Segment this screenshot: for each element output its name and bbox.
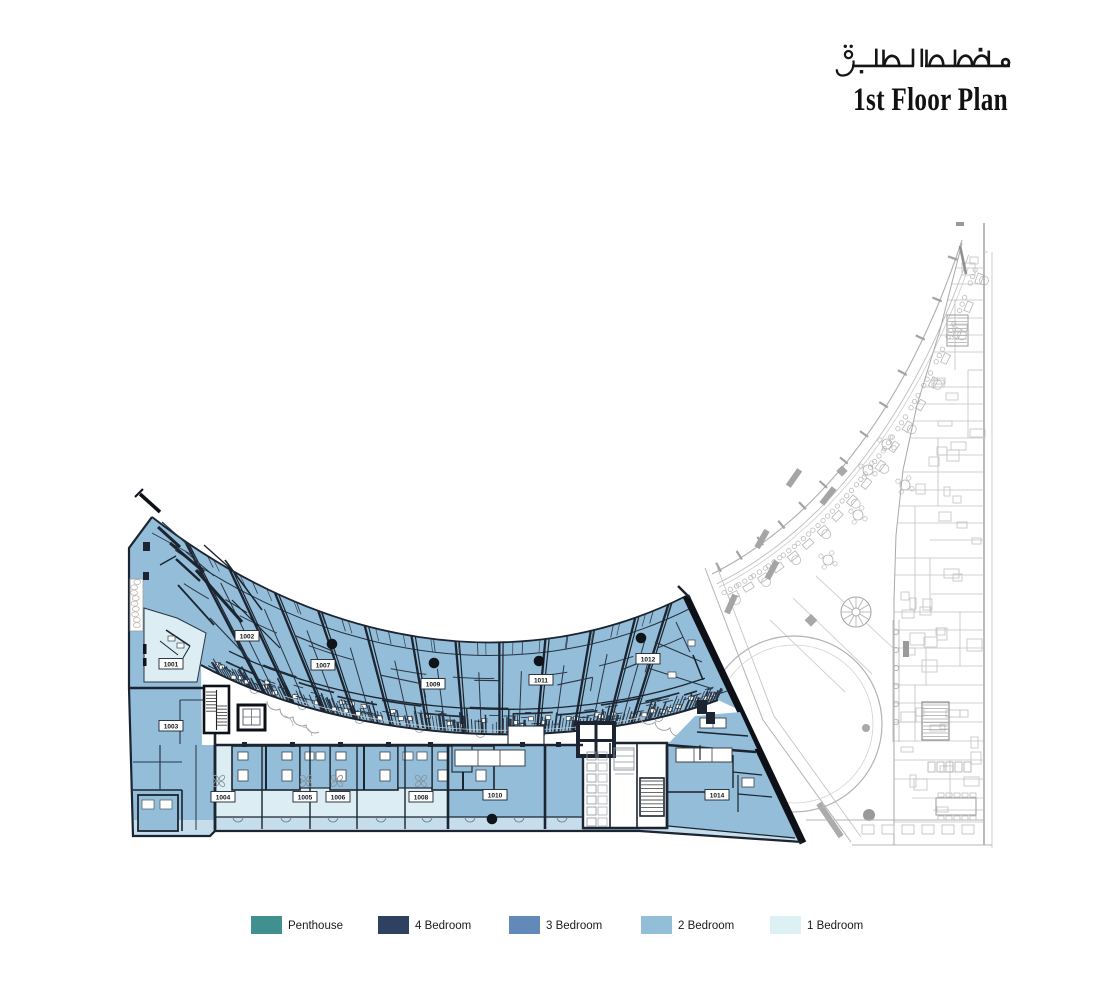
- svg-text:3 Bedroom: 3 Bedroom: [546, 920, 602, 932]
- svg-text:1005: 1005: [298, 795, 313, 802]
- svg-text:1002: 1002: [240, 634, 255, 641]
- svg-text:1008: 1008: [414, 795, 429, 802]
- svg-text:1010: 1010: [488, 793, 503, 800]
- svg-text:1006: 1006: [331, 795, 346, 802]
- svg-text:1014: 1014: [710, 793, 725, 800]
- svg-text:1004: 1004: [216, 795, 231, 802]
- svg-text:1st Floor Plan: 1st Floor Plan: [853, 82, 1008, 118]
- svg-text:Penthouse: Penthouse: [288, 920, 343, 932]
- svg-text:1007: 1007: [316, 663, 331, 670]
- svg-text:1003: 1003: [164, 724, 179, 731]
- svg-text:2 Bedroom: 2 Bedroom: [678, 920, 734, 932]
- svg-text:1 Bedroom: 1 Bedroom: [807, 920, 863, 932]
- svg-text:1009: 1009: [426, 682, 441, 689]
- svg-text:4 Bedroom: 4 Bedroom: [415, 920, 471, 932]
- svg-text:1012: 1012: [641, 657, 656, 664]
- svg-text:1001: 1001: [164, 662, 179, 669]
- svg-text:1011: 1011: [534, 678, 548, 685]
